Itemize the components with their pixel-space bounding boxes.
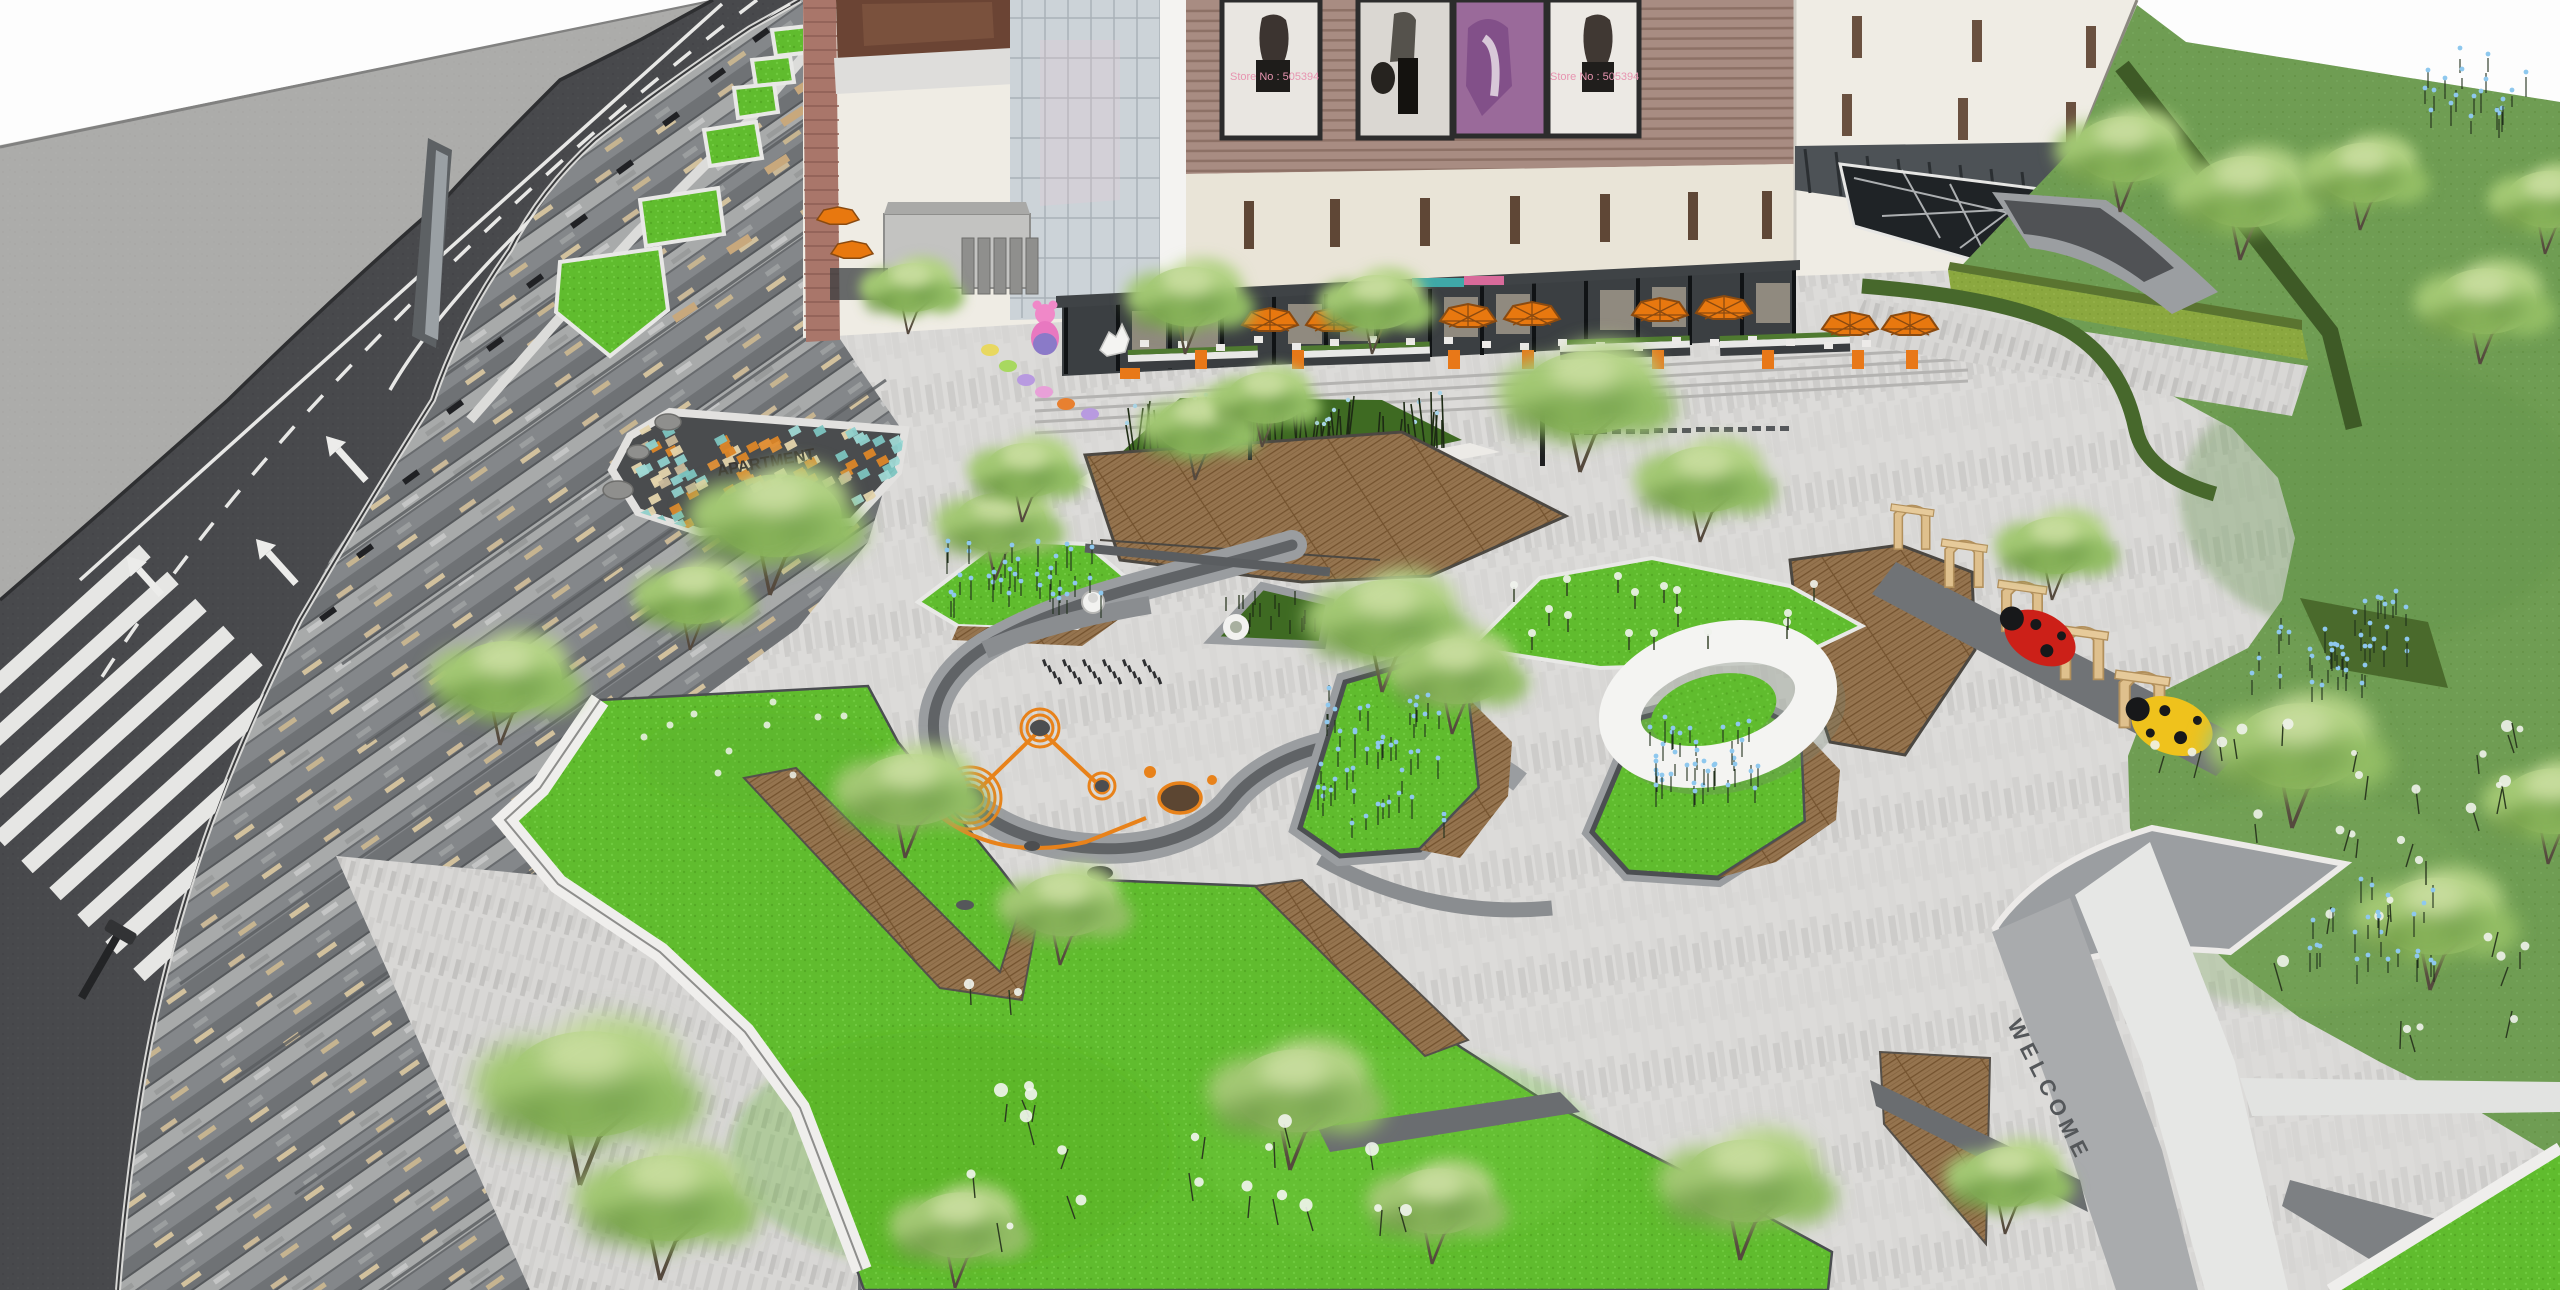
svg-text:Store No : 505394: Store No : 505394 (1550, 71, 1639, 83)
svg-text:Store No : 505394: Store No : 505394 (1230, 71, 1319, 83)
